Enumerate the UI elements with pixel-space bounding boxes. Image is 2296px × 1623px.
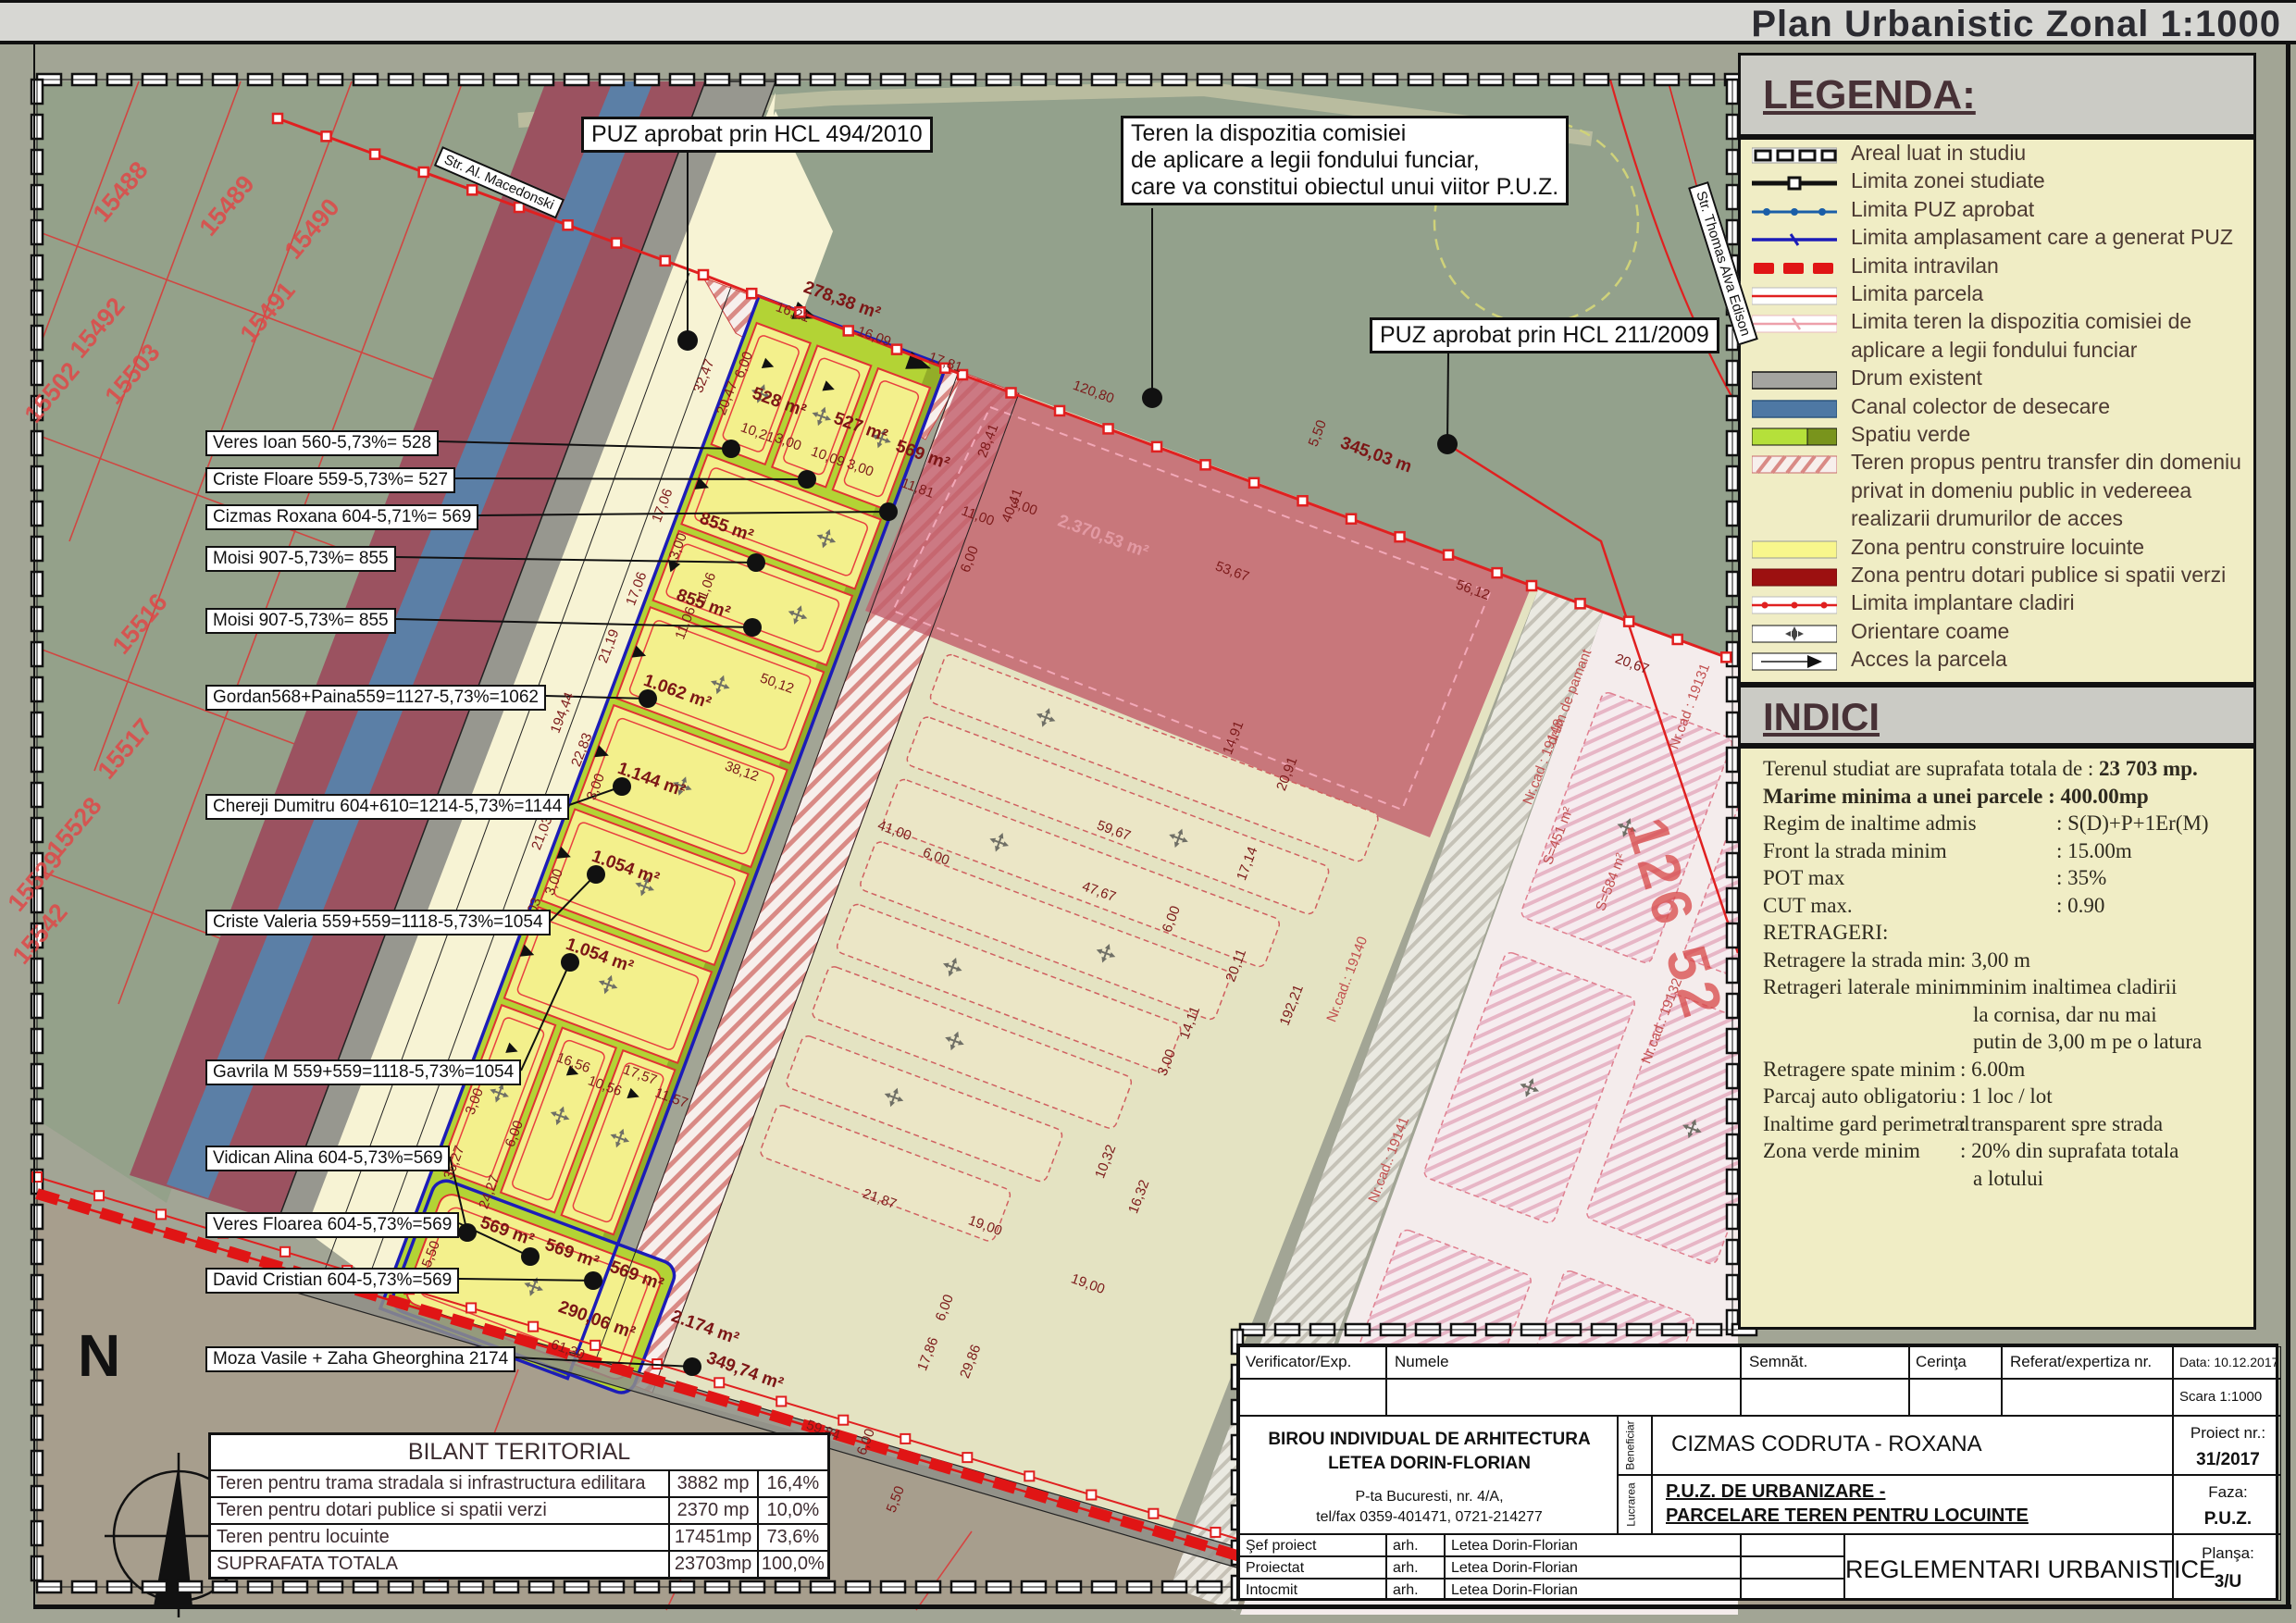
tb-addr1: P-ta Bucuresti, nr. 4/A, xyxy=(1240,1489,1619,1505)
legend-heading: LEGENDA: xyxy=(1763,72,1976,118)
indici-line: Parcaj auto obligatoriu xyxy=(1763,1084,1957,1109)
tb-proiect-nr: 31/2017 xyxy=(2174,1450,2282,1470)
map-callout: Teren la dispozitia comisieide aplicare … xyxy=(1121,116,1569,205)
legend-swatch-areal-icon xyxy=(1752,146,1837,165)
legend-item-label-cont: aplicare a legii fondului funciar xyxy=(1851,338,2137,363)
indici-value: : transparent spre strada xyxy=(1960,1112,2163,1136)
indici-line: Retragere la strada min xyxy=(1763,948,1961,973)
indici-value: : 6.00m xyxy=(1960,1058,2025,1082)
indici-line: Zona verde minim xyxy=(1763,1139,1920,1163)
map-callout: PUZ aprobat prin HCL 494/2010 xyxy=(581,117,933,153)
legend-item-label: Limita teren la dispozitia comisiei de xyxy=(1851,309,2191,334)
indici-line: Regim de inaltime admis xyxy=(1763,811,1977,836)
legend-swatch-implantare-icon xyxy=(1752,596,1837,614)
legend-item-label: Spatiu verde xyxy=(1851,422,1970,447)
tb-proiect-label: Proiect nr.: xyxy=(2174,1424,2282,1443)
indici-value: : S(D)+P+1Er(M) xyxy=(2056,811,2209,836)
title-block: Verificator/Exp. Numele Semnăt. Cerinţa … xyxy=(1236,1344,2278,1601)
tb-lucrarea2: PARCELARE TEREN PENTRU LOCUINTE xyxy=(1666,1505,2029,1527)
tb-row-text: Letea Dorin-Florian xyxy=(1451,1560,1578,1577)
indici-value: : 20% din suprafata totala xyxy=(1960,1139,2178,1163)
owner-label: Gavrila M 559+559=1118-5,73%=1054 xyxy=(205,1059,521,1085)
indici-value: : minim inaltimea cladirii xyxy=(1960,975,2177,999)
tb-faza: P.U.Z. xyxy=(2174,1509,2282,1530)
indici-line: Inaltime gard perimetral xyxy=(1763,1112,1970,1136)
map-callout: PUZ aprobat prin HCL 211/2009 xyxy=(1370,317,1719,353)
indici-value: : 15.00m xyxy=(2056,839,2132,863)
owner-label: Moza Vasile + Zaha Gheorghina 2174 xyxy=(205,1346,515,1372)
owner-label: Veres Floarea 604-5,73%=569 xyxy=(205,1212,459,1238)
tb-plansa-nr: 3/U xyxy=(2174,1572,2282,1592)
tb-cerinta: Cerinţa xyxy=(1916,1353,1967,1371)
legend-item-label: Limita PUZ aprobat xyxy=(1851,197,2034,222)
indici-value: a lotului xyxy=(1973,1167,2043,1191)
tb-semnat: Semnăt. xyxy=(1749,1353,1807,1371)
tb-row-text: arh. xyxy=(1393,1560,1419,1577)
legend-swatch-puz_aprobat-icon xyxy=(1752,203,1837,221)
indici-line: Retragere spate minim xyxy=(1763,1058,1955,1082)
legend-swatch-acces-icon xyxy=(1752,652,1837,671)
tb-row-text: arh. xyxy=(1393,1582,1419,1599)
owner-label: Criste Floare 559-5,73%= 527 xyxy=(205,467,455,493)
sheet-title-bar: Plan Urbanistic Zonal 1:1000 xyxy=(0,0,2296,44)
tb-row-text: Letea Dorin-Florian xyxy=(1451,1538,1578,1555)
tb-faza-label: Faza: xyxy=(2174,1483,2282,1502)
owner-label: Veres Ioan 560-5,73%= 528 xyxy=(205,430,439,456)
legend-swatch-canal-icon xyxy=(1752,400,1837,418)
tb-referat: Referat/expertiza nr. xyxy=(2010,1353,2152,1371)
tb-beneficiar-label: Beneficiar xyxy=(1624,1420,1637,1469)
indici-value: la cornisa, dar nu mai xyxy=(1973,1003,2157,1027)
indici-value: : 1 loc / lot xyxy=(1960,1084,2053,1109)
tb-scara: Scara 1:1000 xyxy=(2179,1389,2262,1405)
legend-item-label: Drum existent xyxy=(1851,365,1982,390)
legend-swatch-dotari-icon xyxy=(1752,568,1837,587)
legend-item-label: Teren propus pentru transfer din domeniu xyxy=(1851,450,2241,475)
indici-value: : 35% xyxy=(2056,866,2106,890)
north-letter: N xyxy=(78,1321,120,1390)
indici-line: Retrageri laterale minim xyxy=(1763,975,1971,999)
bilant-row: Teren pentru locuinte17451mp73,6% xyxy=(211,1523,827,1550)
legend-item-label: Limita amplasament care a generat PUZ xyxy=(1851,225,2233,250)
indici-line: Terenul studiat are suprafata totala de … xyxy=(1763,757,2198,781)
owner-label: Vidican Alina 604-5,73%=569 xyxy=(205,1146,450,1171)
indici-heading: INDICI xyxy=(1763,695,1880,739)
legend-item-label: Limita intravilan xyxy=(1851,254,1999,279)
legend-swatch-coame-icon xyxy=(1752,625,1837,643)
owner-label: Cizmas Roxana 604-5,71%= 569 xyxy=(205,504,478,530)
legend-swatch-verde-icon xyxy=(1752,427,1837,446)
tb-numele: Numele xyxy=(1395,1353,1449,1371)
indici-line: Marime minima a unei parcele : 400.00mp xyxy=(1763,785,2149,809)
bilant-table: BILANT TERITORIAL Teren pentru trama str… xyxy=(208,1432,830,1580)
indici-value: : 0.90 xyxy=(2056,894,2104,918)
tb-row-text: Letea Dorin-Florian xyxy=(1451,1582,1578,1599)
legend-item-label: Limita implantare cladiri xyxy=(1851,590,2075,615)
legend-item-label: Limita zonei studiate xyxy=(1851,168,2045,193)
indici-header-band: INDICI xyxy=(1738,685,2256,746)
tb-firm2: LETEA DORIN-FLORIAN xyxy=(1240,1454,1619,1474)
legend-header-band: LEGENDA: xyxy=(1738,53,2256,137)
legend-item-label: Zona pentru dotari publice si spatii ver… xyxy=(1851,563,2226,588)
tb-verificator: Verificator/Exp. xyxy=(1246,1353,1351,1371)
legend-item-label-cont: realizarii drumurilor de acces xyxy=(1851,506,2123,531)
bilant-row: SUPRAFATA TOTALA23703mp100,0% xyxy=(211,1550,827,1577)
legend-item-label: Limita parcela xyxy=(1851,281,1983,306)
page-title: Plan Urbanistic Zonal 1:1000 xyxy=(1751,4,2281,45)
legend-swatch-locuinte-icon xyxy=(1752,540,1837,559)
bilant-row: Teren pentru dotari publice si spatii ve… xyxy=(211,1496,827,1523)
tb-row-text: Şef proiect xyxy=(1246,1538,1316,1555)
legend-swatch-parcela-icon xyxy=(1752,287,1837,305)
tb-row-text: arh. xyxy=(1393,1538,1419,1555)
legend-item-label: Areal luat in studiu xyxy=(1851,141,2026,166)
owner-label: David Cristian 604-5,73%=569 xyxy=(205,1268,459,1294)
indici-line: RETRAGERI: xyxy=(1763,921,1888,945)
indici-value: : 3,00 m xyxy=(1960,948,2030,973)
tb-lucrarea1: P.U.Z. DE URBANIZARE - xyxy=(1666,1481,1885,1503)
legend-item-label: Canal colector de desecare xyxy=(1851,394,2110,419)
legend-swatch-teren_comisie-icon xyxy=(1752,315,1837,333)
owner-label: Moisi 907-5,73%= 855 xyxy=(205,546,396,572)
tb-firm1: BIROU INDIVIDUAL DE ARHITECTURA xyxy=(1240,1430,1619,1450)
tb-beneficiar: CIZMAS CODRUTA - ROXANA xyxy=(1671,1431,1982,1457)
owner-label: Criste Valeria 559+559=1118-5,73%=1054 xyxy=(205,910,551,935)
tb-row-text: Intocmit xyxy=(1246,1582,1297,1599)
owner-label: Chereji Dumitru 604+610=1214-5,73%=1144 xyxy=(205,794,569,820)
legend-swatch-intravilan-icon xyxy=(1752,259,1837,278)
owner-label: Gordan568+Paina559=1127-5,73%=1062 xyxy=(205,685,546,711)
tb-row-text: Proiectat xyxy=(1246,1560,1304,1577)
indici-line: Front la strada minim xyxy=(1763,839,1947,863)
legend-item-label: Orientare coame xyxy=(1851,619,2009,644)
sheet: 528 m²527 m²569 m²855 m²855 m²1.062 m²1.… xyxy=(0,0,2296,1623)
tb-lucrarea-label: Lucrarea xyxy=(1625,1482,1638,1526)
indici-value: putin de 3,00 m pe o latura xyxy=(1973,1030,2202,1054)
indici-line: POT max xyxy=(1763,866,1844,890)
legend-swatch-zona_studiata-icon xyxy=(1752,174,1837,192)
tb-plansa-title: REGLEMENTARI URBANISTICE xyxy=(1845,1555,2174,1584)
legend-item-label: Acces la parcela xyxy=(1851,647,2007,672)
tb-addr2: tel/fax 0359-401471, 0721-214277 xyxy=(1240,1509,1619,1526)
tb-data: Data: 10.12.2017 xyxy=(2179,1355,2278,1369)
tb-plansa-label: Planşa: xyxy=(2174,1544,2282,1563)
owner-label: Moisi 907-5,73%= 855 xyxy=(205,608,396,634)
legend-item-label: Zona pentru construire locuinte xyxy=(1851,535,2144,560)
legend-swatch-transfer-icon xyxy=(1752,455,1837,474)
legend-swatch-amplasament-icon xyxy=(1752,230,1837,249)
legend-item-label-cont: privat in domeniu public in vedereea xyxy=(1851,478,2191,503)
bilant-row: Teren pentru trama stradala si infrastru… xyxy=(211,1469,827,1496)
bilant-title: BILANT TERITORIAL xyxy=(211,1435,827,1469)
legend-swatch-drum-icon xyxy=(1752,371,1837,390)
indici-line: CUT max. xyxy=(1763,894,1853,918)
